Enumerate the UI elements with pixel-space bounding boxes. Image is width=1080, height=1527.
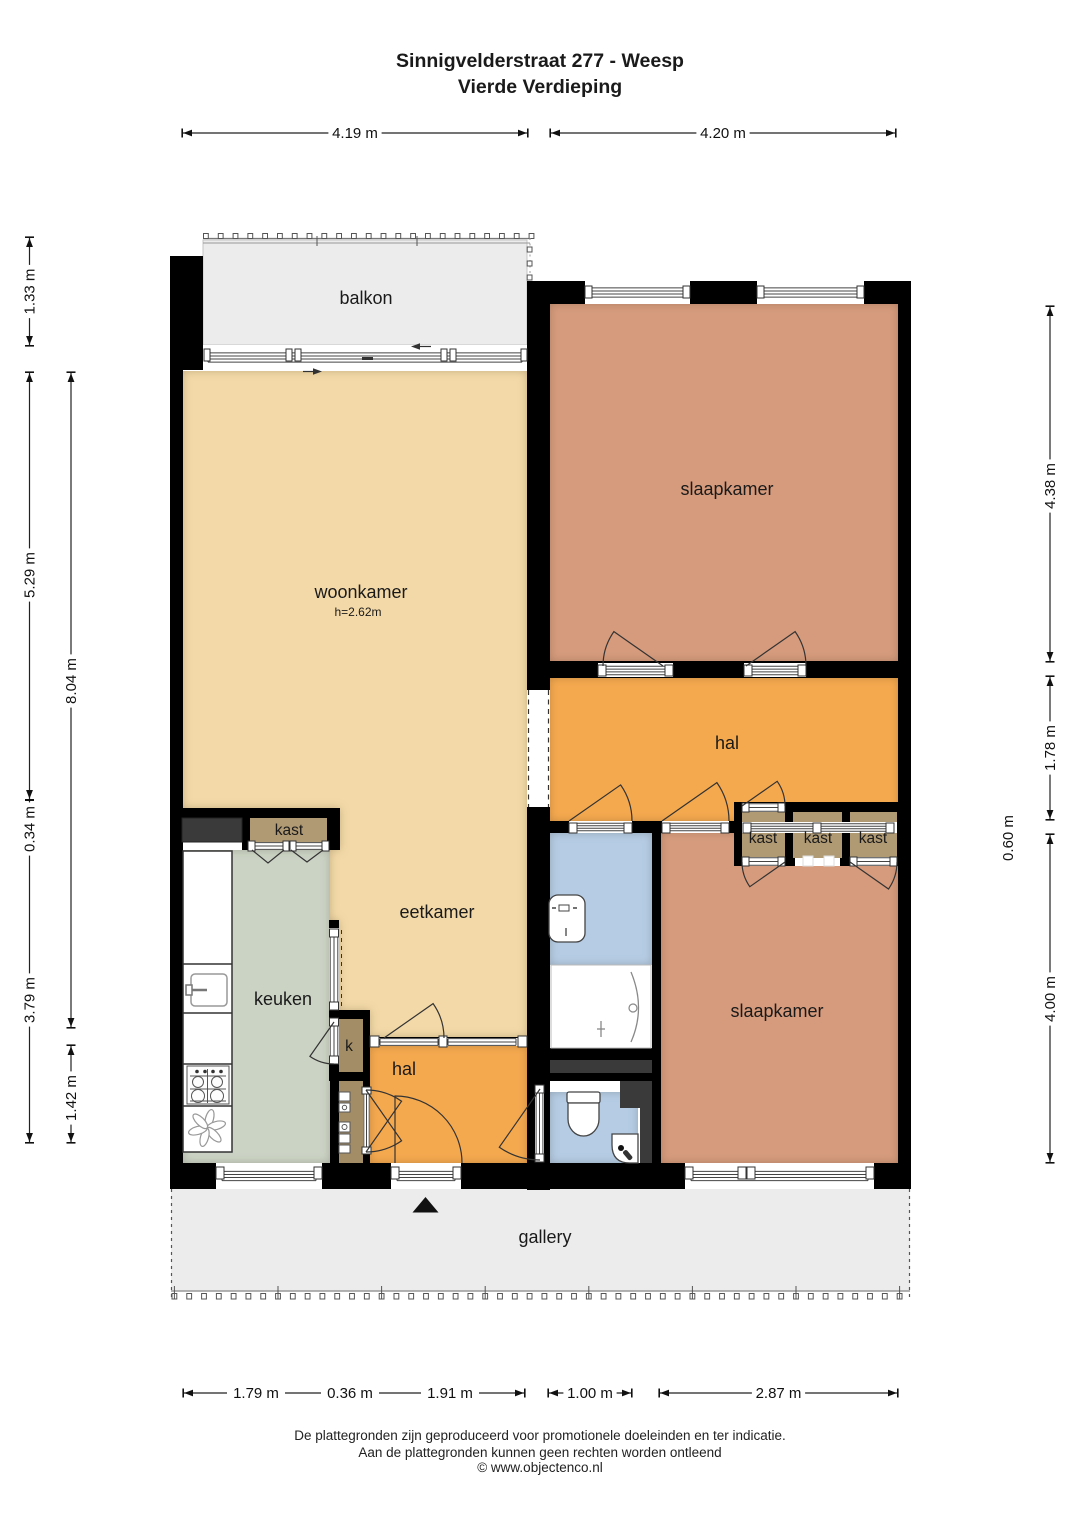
- svg-text:kast: kast: [749, 830, 778, 847]
- svg-text:1.78 m: 1.78 m: [1042, 725, 1059, 771]
- svg-text:k: k: [345, 1038, 353, 1055]
- svg-text:4.38 m: 4.38 m: [1042, 463, 1059, 509]
- svg-text:Sinnigvelderstraat 277 - Weesp: Sinnigvelderstraat 277 - Weesp: [396, 50, 684, 72]
- svg-text:1.33 m: 1.33 m: [22, 269, 39, 315]
- svg-text:slaapkamer: slaapkamer: [680, 479, 773, 499]
- svg-text:0.60 m: 0.60 m: [1000, 815, 1017, 861]
- svg-text:slaapkamer: slaapkamer: [730, 1001, 823, 1021]
- svg-text:hal: hal: [715, 733, 739, 753]
- svg-text:2.87 m: 2.87 m: [756, 1385, 802, 1402]
- svg-text:5.29 m: 5.29 m: [22, 552, 39, 598]
- svg-text:h=2.62m: h=2.62m: [334, 605, 381, 619]
- svg-text:gallery: gallery: [518, 1227, 571, 1247]
- svg-text:1.79 m: 1.79 m: [233, 1385, 279, 1402]
- svg-text:keuken: keuken: [254, 989, 312, 1009]
- svg-text:kast: kast: [275, 822, 304, 839]
- svg-text:4.20 m: 4.20 m: [700, 125, 746, 142]
- svg-text:4.19 m: 4.19 m: [332, 125, 378, 142]
- svg-text:0.36 m: 0.36 m: [327, 1385, 373, 1402]
- svg-text:0.34 m: 0.34 m: [22, 806, 39, 852]
- svg-text:Aan de plattegronden kunnen ge: Aan de plattegronden kunnen geen rechten…: [358, 1445, 721, 1460]
- svg-text:balkon: balkon: [339, 288, 392, 308]
- svg-text:1.91 m: 1.91 m: [427, 1385, 473, 1402]
- svg-text:Vierde Verdieping: Vierde Verdieping: [458, 76, 622, 98]
- svg-text:hal: hal: [392, 1059, 416, 1079]
- svg-text:woonkamer: woonkamer: [313, 582, 407, 602]
- svg-text:eetkamer: eetkamer: [399, 902, 474, 922]
- svg-text:1.00 m: 1.00 m: [567, 1385, 613, 1402]
- svg-text:De plattegronden zijn geproduc: De plattegronden zijn geproduceerd voor …: [294, 1428, 786, 1443]
- svg-text:8.04 m: 8.04 m: [63, 658, 80, 704]
- svg-text:4.00 m: 4.00 m: [1042, 976, 1059, 1022]
- svg-text:kast: kast: [804, 830, 833, 847]
- svg-text:1.42 m: 1.42 m: [63, 1075, 80, 1121]
- svg-text:3.79 m: 3.79 m: [22, 977, 39, 1023]
- svg-text:kast: kast: [859, 830, 888, 847]
- svg-text:© www.objectenco.nl: © www.objectenco.nl: [477, 1460, 603, 1475]
